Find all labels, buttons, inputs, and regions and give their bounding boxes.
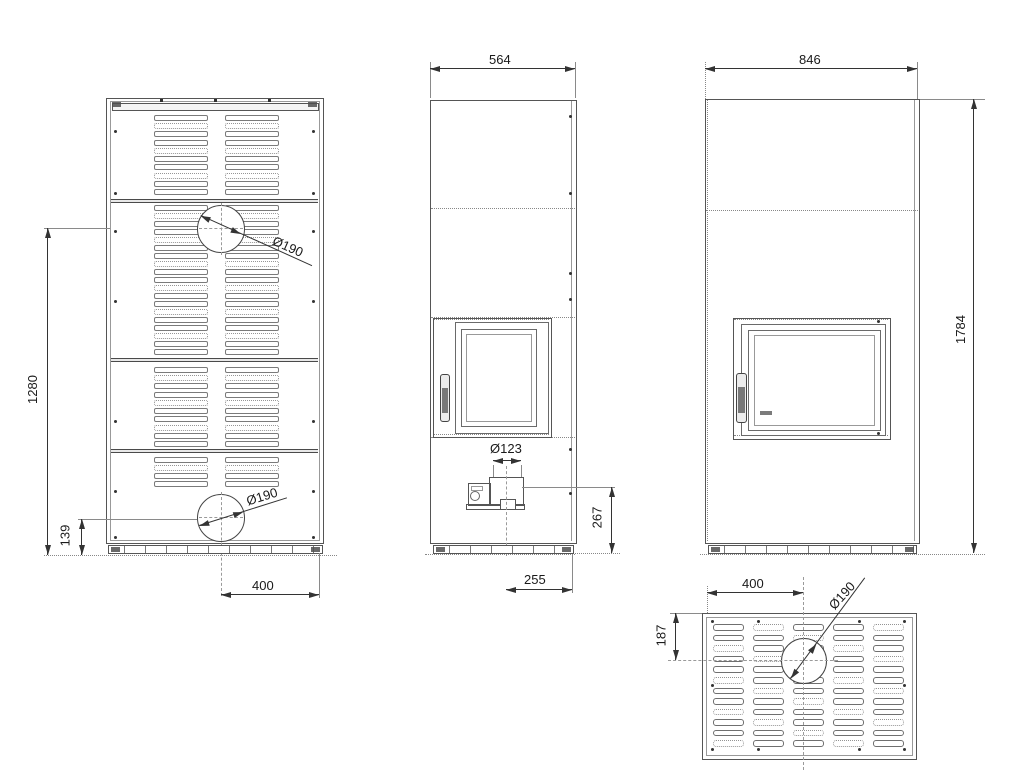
side-seam-1 — [431, 208, 575, 209]
vent-slot — [873, 709, 904, 716]
vent-slot — [225, 140, 279, 146]
dim-rear-flue-x-label: 400 — [252, 578, 274, 593]
vent-slot — [225, 269, 279, 275]
vent-slot — [713, 740, 744, 747]
side-plinth — [433, 545, 574, 554]
vent-slot — [753, 677, 784, 684]
rear-vent-s3-left — [154, 367, 208, 447]
vent-slot — [225, 433, 279, 439]
vent-slot — [833, 688, 864, 695]
vent-slot — [225, 349, 279, 355]
vent-slot — [793, 624, 824, 631]
vent-slot — [225, 425, 279, 431]
vent-slot — [154, 441, 208, 447]
vent-slot — [154, 140, 208, 146]
vent-slot — [225, 441, 279, 447]
vent-slot — [154, 269, 208, 275]
vent-slot — [154, 285, 208, 291]
vent-slot — [753, 635, 784, 642]
vent-slot — [154, 301, 208, 307]
vent-slot — [225, 416, 279, 422]
vent-slot — [225, 293, 279, 299]
vent-slot — [833, 624, 864, 631]
rear-seam-2 — [111, 358, 318, 362]
vent-slot — [225, 123, 279, 129]
rear-body-inner-line — [110, 101, 320, 541]
rear-seam-3 — [111, 449, 318, 453]
vent-slot — [833, 677, 864, 684]
front-door-handle — [736, 373, 747, 423]
rear-vent-s4-left — [154, 457, 208, 487]
vent-slot — [873, 624, 904, 631]
vent-slot — [154, 253, 208, 259]
vent-slot — [154, 317, 208, 323]
dim-front-width-label: 846 — [799, 52, 821, 67]
vent-slot — [154, 375, 208, 381]
vent-slot — [225, 277, 279, 283]
vent-slot — [753, 709, 784, 716]
vent-slot — [225, 173, 279, 179]
rear-vent-s1-right — [225, 115, 279, 195]
vent-slot — [225, 156, 279, 162]
front-door-glass — [754, 335, 875, 426]
vent-slot — [873, 656, 904, 663]
vent-slot — [793, 709, 824, 716]
vent-slot — [154, 115, 208, 121]
rear-top-bar — [112, 103, 319, 111]
vent-slot — [225, 115, 279, 121]
vent-slot — [833, 698, 864, 705]
vent-slot — [154, 181, 208, 187]
vent-slot — [154, 408, 208, 414]
vent-slot — [225, 261, 279, 267]
vent-slot — [225, 309, 279, 315]
vent-slot — [225, 325, 279, 331]
rear-floor-line — [44, 555, 337, 556]
dim-top-flue-y-label: 187 — [653, 625, 668, 647]
vent-slot — [833, 645, 864, 652]
vent-slot — [225, 164, 279, 170]
rear-plinth — [108, 545, 323, 554]
vent-slot — [225, 465, 279, 471]
dim-rear-height-label: 1280 — [25, 375, 40, 404]
rear-vent-s3-right — [225, 367, 279, 447]
vent-slot — [154, 261, 208, 267]
rear-seam-1 — [111, 199, 318, 203]
vent-slot — [154, 400, 208, 406]
vent-slot — [225, 383, 279, 389]
vent-slot — [713, 709, 744, 716]
vent-slot — [154, 123, 208, 129]
vent-slot — [154, 383, 208, 389]
dim-top-flue-x-label: 400 — [742, 576, 764, 591]
vent-slot — [833, 635, 864, 642]
vent-slot — [873, 698, 904, 705]
dim-front-height-label: 1784 — [953, 315, 968, 344]
vent-slot — [225, 301, 279, 307]
vent-slot — [154, 325, 208, 331]
vent-slot — [154, 457, 208, 463]
vent-slot — [793, 719, 824, 726]
vent-slot — [154, 465, 208, 471]
vent-slot — [154, 309, 208, 315]
dim-side-inlet-height-label: 267 — [589, 507, 604, 529]
rear-vent-s4-right — [225, 457, 279, 487]
rear-vent-s1-left — [154, 115, 208, 195]
vent-slot — [154, 473, 208, 479]
vent-slot — [154, 189, 208, 195]
vent-slot — [713, 730, 744, 737]
dim-side-depth-label: 564 — [489, 52, 511, 67]
vent-slot — [154, 341, 208, 347]
vent-slot — [833, 730, 864, 737]
vent-slot — [873, 645, 904, 652]
door-logo-mark — [760, 411, 772, 415]
vent-slot — [753, 730, 784, 737]
vent-slot — [225, 189, 279, 195]
vent-slot — [154, 367, 208, 373]
vent-slot — [873, 666, 904, 673]
vent-slot — [873, 740, 904, 747]
front-seam-1 — [706, 210, 918, 211]
vent-slot — [753, 645, 784, 652]
vent-slot — [873, 719, 904, 726]
vent-slot — [753, 624, 784, 631]
vent-slot — [833, 709, 864, 716]
vent-slot — [225, 375, 279, 381]
vent-slot — [225, 317, 279, 323]
vent-slot — [225, 181, 279, 187]
vent-slot — [713, 688, 744, 695]
dim-side-inlet-offset-label: 255 — [524, 572, 546, 587]
vent-slot — [225, 367, 279, 373]
vent-slot — [833, 740, 864, 747]
front-plinth — [708, 545, 917, 554]
vent-slot — [225, 400, 279, 406]
vent-slot — [833, 719, 864, 726]
vent-slot — [793, 730, 824, 737]
dim-side-inlet-dia-label: Ø123 — [490, 441, 522, 456]
vent-slot — [753, 688, 784, 695]
vent-slot — [154, 481, 208, 487]
side-floor-line — [425, 554, 575, 555]
vent-slot — [713, 645, 744, 652]
vent-slot — [713, 635, 744, 642]
vent-slot — [873, 677, 904, 684]
side-door-glass — [466, 334, 532, 422]
vent-slot — [154, 277, 208, 283]
vent-slot — [154, 392, 208, 398]
vent-slot — [225, 131, 279, 137]
vent-slot — [154, 245, 208, 251]
vent-slot — [154, 156, 208, 162]
vent-slot — [154, 425, 208, 431]
vent-slot — [154, 333, 208, 339]
vent-slot — [753, 719, 784, 726]
vent-slot — [154, 131, 208, 137]
vent-slot — [833, 666, 864, 673]
vent-slot — [154, 173, 208, 179]
vent-slot — [154, 433, 208, 439]
dim-rear-flue-bottom-label: 139 — [57, 525, 72, 547]
vent-slot — [225, 473, 279, 479]
vent-slot — [873, 635, 904, 642]
vent-slot — [154, 164, 208, 170]
vent-slot — [225, 253, 279, 259]
vent-slot — [753, 666, 784, 673]
vent-slot — [225, 285, 279, 291]
vent-slot — [873, 688, 904, 695]
vent-slot — [713, 677, 744, 684]
vent-slot — [154, 416, 208, 422]
vent-slot — [873, 730, 904, 737]
front-floor-line — [700, 554, 985, 555]
vent-slot — [154, 148, 208, 154]
vent-slot — [225, 148, 279, 154]
vent-slot — [154, 205, 208, 211]
technical-drawing-canvas: 1280 139 400 Ø190 — [0, 0, 1024, 775]
vent-slot — [793, 688, 824, 695]
vent-slot — [225, 457, 279, 463]
vent-slot — [713, 666, 744, 673]
vent-slot — [225, 341, 279, 347]
vent-slot — [753, 698, 784, 705]
vent-slot — [793, 698, 824, 705]
vent-slot — [154, 349, 208, 355]
side-door-handle — [440, 374, 450, 422]
vent-slot — [225, 392, 279, 398]
vent-slot — [154, 293, 208, 299]
vent-slot — [713, 698, 744, 705]
vent-slot — [793, 740, 824, 747]
vent-slot — [753, 740, 784, 747]
vent-slot — [225, 333, 279, 339]
vent-slot — [713, 624, 744, 631]
vent-slot — [225, 408, 279, 414]
vent-slot — [713, 719, 744, 726]
